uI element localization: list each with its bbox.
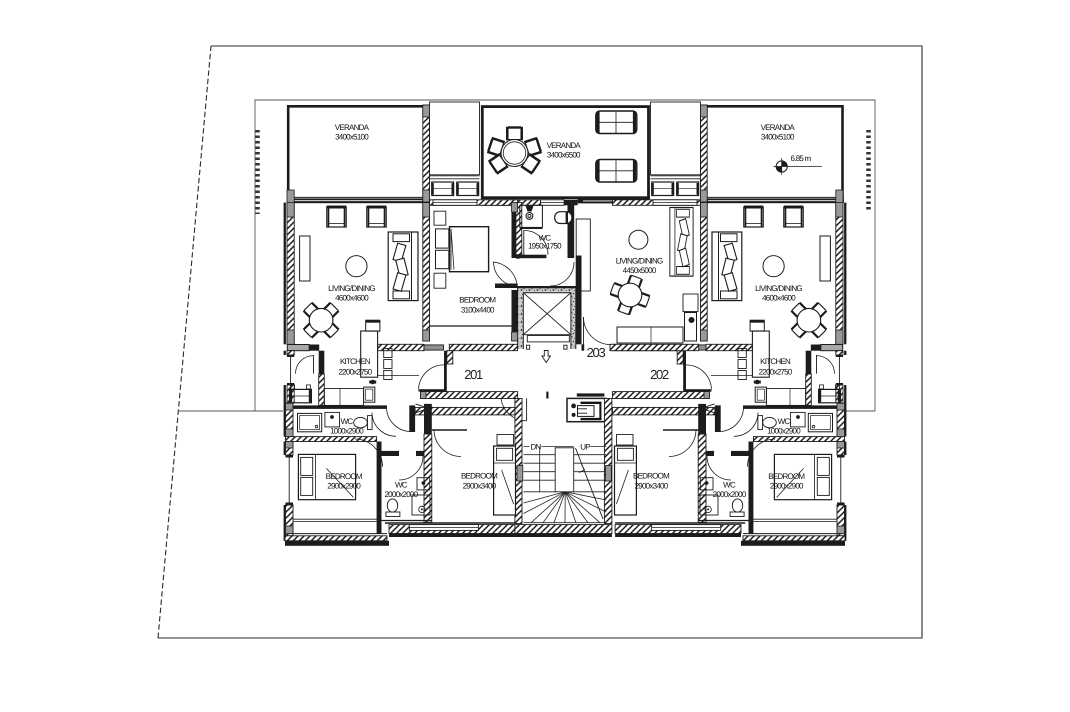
svg-text:VERANDA: VERANDA: [335, 123, 370, 132]
svg-text:UP: UP: [580, 442, 590, 451]
svg-text:2000x2000: 2000x2000: [713, 490, 747, 499]
svg-text:4450x5000: 4450x5000: [623, 266, 657, 275]
svg-text:WC: WC: [341, 417, 354, 426]
svg-text:BEDROOM: BEDROOM: [461, 471, 498, 480]
svg-text:2200x2750: 2200x2750: [759, 368, 793, 377]
svg-text:1000x2900: 1000x2900: [330, 427, 364, 436]
svg-text:4600x4600: 4600x4600: [762, 294, 796, 303]
svg-text:202: 202: [650, 367, 669, 382]
svg-text:6.85 m: 6.85 m: [791, 154, 812, 163]
svg-text:WC: WC: [778, 417, 791, 426]
svg-text:2000x2000: 2000x2000: [384, 490, 418, 499]
svg-text:LIVING/DINING: LIVING/DINING: [755, 284, 802, 293]
svg-text:BEDROOM: BEDROOM: [633, 471, 670, 480]
svg-text:2900x3400: 2900x3400: [635, 482, 669, 491]
svg-text:4600x4600: 4600x4600: [335, 294, 369, 303]
svg-text:KITCHEN: KITCHEN: [340, 357, 371, 366]
svg-text:2900x2900: 2900x2900: [770, 482, 804, 491]
svg-text:LIVING/DINING: LIVING/DINING: [616, 257, 663, 266]
svg-text:201: 201: [464, 367, 483, 382]
svg-text:1000x2900: 1000x2900: [767, 427, 801, 436]
svg-text:LIVING/DINING: LIVING/DINING: [328, 284, 375, 293]
svg-text:BEDROOM: BEDROOM: [459, 296, 496, 305]
svg-text:3100x4400: 3100x4400: [461, 305, 495, 314]
svg-text:KITCHEN: KITCHEN: [760, 357, 791, 366]
svg-text:3400x5100: 3400x5100: [761, 133, 795, 142]
svg-text:WC: WC: [723, 481, 736, 490]
svg-text:2900x3400: 2900x3400: [463, 482, 497, 491]
svg-text:BEDROOM: BEDROOM: [768, 472, 805, 481]
svg-text:WC: WC: [395, 481, 408, 490]
svg-text:2200x2750: 2200x2750: [338, 368, 372, 377]
svg-text:3400x6500: 3400x6500: [547, 150, 581, 159]
svg-text:DN: DN: [530, 442, 541, 451]
svg-text:BEDROOM: BEDROOM: [326, 472, 363, 481]
svg-text:VERANDA: VERANDA: [761, 123, 796, 132]
svg-text:2900x2900: 2900x2900: [327, 482, 361, 491]
svg-text:203: 203: [587, 345, 606, 360]
svg-text:3400x5100: 3400x5100: [335, 133, 369, 142]
svg-text:VERANDA: VERANDA: [547, 141, 582, 150]
